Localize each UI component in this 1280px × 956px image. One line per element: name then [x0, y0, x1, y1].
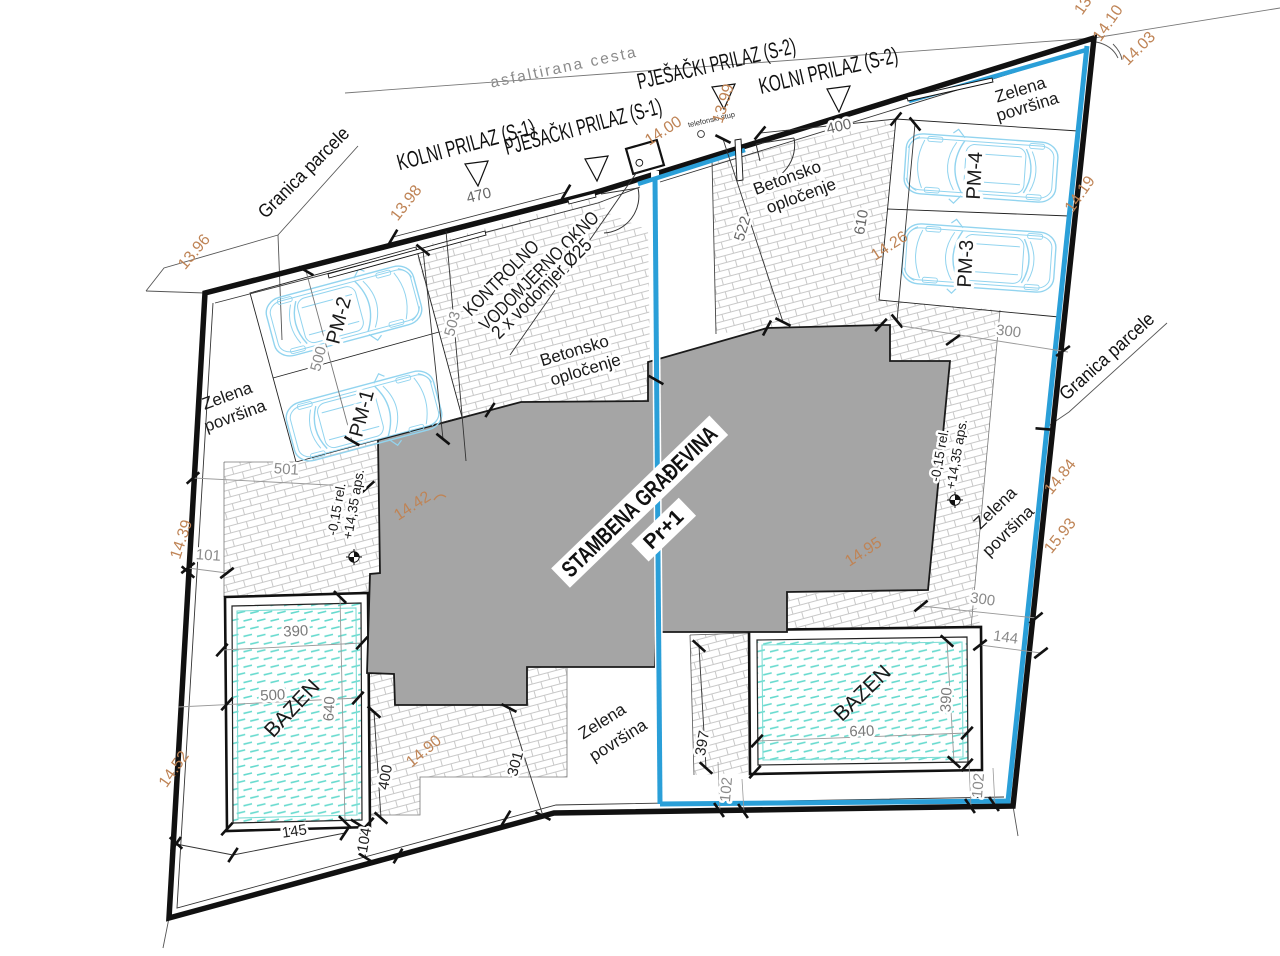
svg-text:390: 390 — [283, 622, 309, 640]
svg-text:640: 640 — [320, 696, 338, 722]
svg-text:500: 500 — [260, 686, 286, 704]
svg-text:102: 102 — [717, 776, 736, 802]
svg-text:144: 144 — [992, 627, 1019, 647]
svg-text:640: 640 — [849, 723, 875, 741]
svg-text:300: 300 — [995, 322, 1022, 342]
svg-text:101: 101 — [195, 546, 221, 565]
svg-text:PM-4: PM-4 — [963, 151, 987, 200]
svg-text:390: 390 — [937, 687, 955, 713]
svg-text:300: 300 — [969, 589, 996, 609]
svg-text:102: 102 — [969, 772, 988, 798]
svg-text:PM-3: PM-3 — [954, 239, 978, 288]
svg-text:145: 145 — [281, 821, 308, 841]
svg-text:501: 501 — [273, 460, 299, 479]
